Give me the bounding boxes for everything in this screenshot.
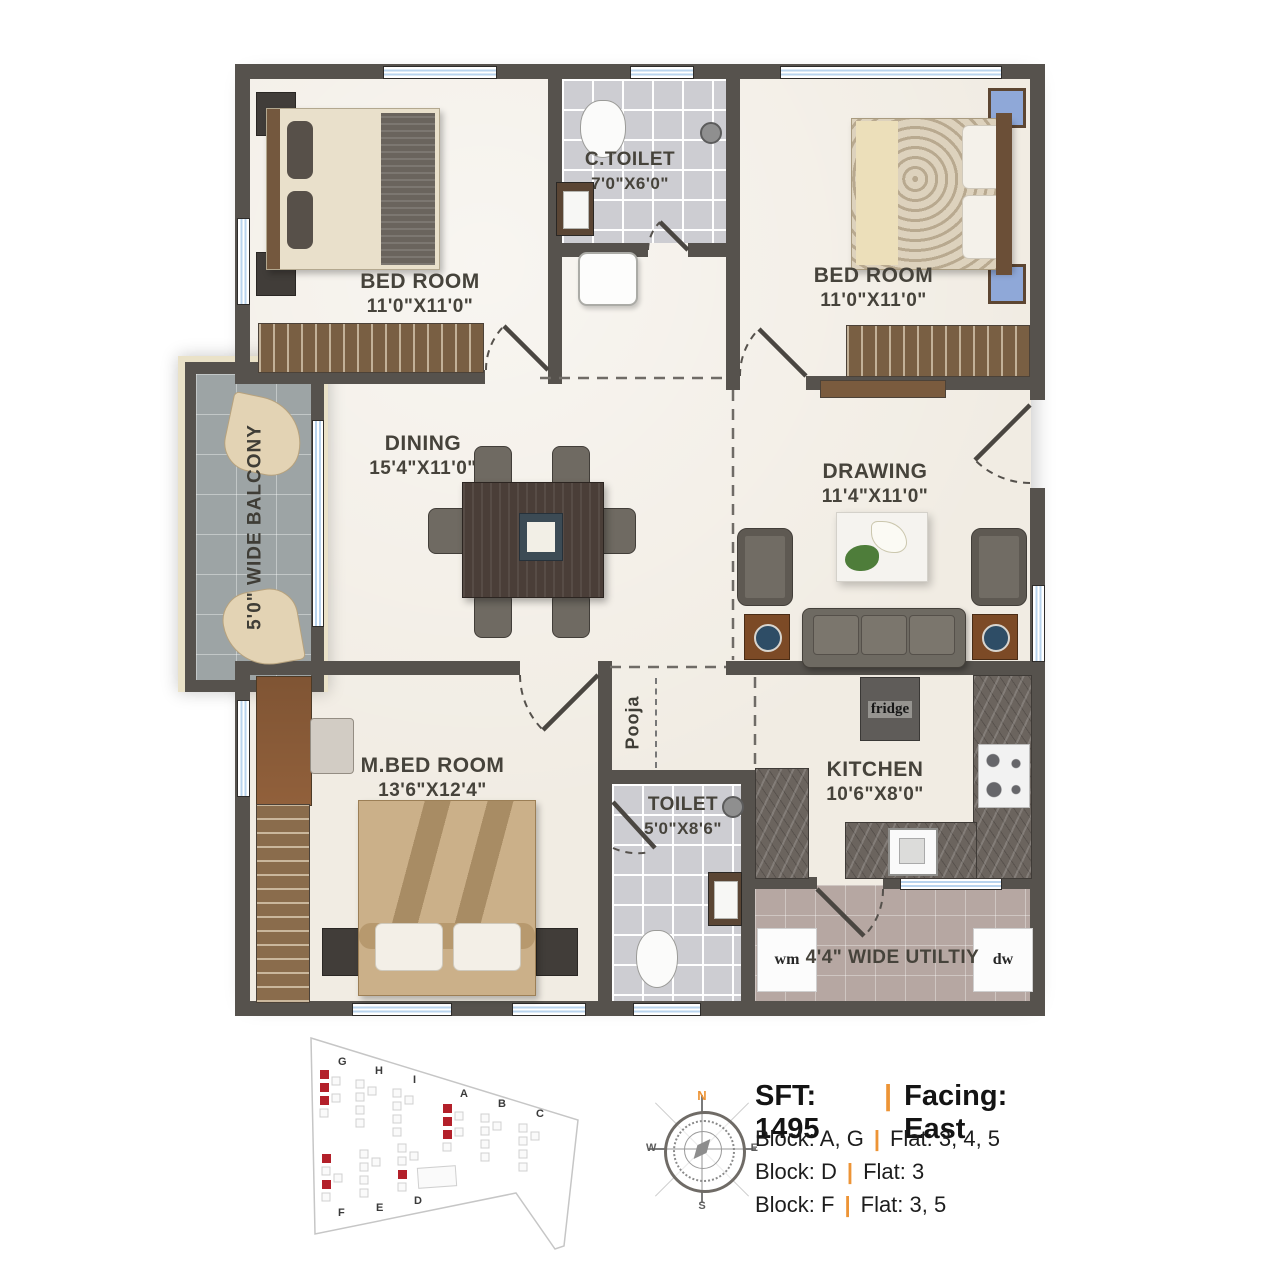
block-flat-row: Block: F | Flat: 3, 5 xyxy=(755,1192,946,1218)
compass-north-label: N xyxy=(646,1088,758,1103)
bedroom1-label: BED ROOM 11'0"X11'0" xyxy=(330,268,510,320)
room-dim: 10'6"X8'0" xyxy=(795,783,955,808)
flat-value: Flat: 3, 5 xyxy=(861,1192,947,1218)
divider: | xyxy=(847,1159,853,1185)
room-dim: 11'0"X11'0" xyxy=(330,295,510,320)
block-letter-E: E xyxy=(376,1202,383,1214)
apartment-floor-plan: fridge wm dw xyxy=(0,0,1280,1280)
dining-label: DINING 15'4"X11'0" xyxy=(338,430,508,482)
block-value: Block: A, G xyxy=(755,1126,864,1152)
block-letter-B: B xyxy=(498,1098,506,1110)
block-value: Block: D xyxy=(755,1159,837,1185)
kitchen-label: KITCHEN 10'6"X8'0" xyxy=(795,756,955,808)
block-value: Block: F xyxy=(755,1192,834,1218)
door-swing-arcs xyxy=(486,222,1030,936)
block-letter-G: G xyxy=(338,1056,347,1068)
mbedroom-label: M.BED ROOM 13'6"X12'4" xyxy=(340,752,525,804)
balcony-label: 5'0" WIDE BALCONY xyxy=(245,405,267,650)
compass-west-label: W xyxy=(646,1142,656,1154)
room-name: BED ROOM xyxy=(786,262,961,289)
room-dim: 7'0"X6'0" xyxy=(560,173,700,195)
room-dim: 5'0"X8'6" xyxy=(618,818,748,840)
ctoilet-label: C.TOILET 7'0"X6'0" xyxy=(560,148,700,195)
block-letter-F: F xyxy=(338,1207,345,1219)
block-letter-H: H xyxy=(375,1065,383,1077)
pooja-dash-boundary xyxy=(655,678,657,768)
door-leaves xyxy=(504,222,1030,936)
room-name: C.TOILET xyxy=(560,148,700,173)
block-letter-I: I xyxy=(413,1074,416,1086)
flat-value: Flat: 3 xyxy=(863,1159,924,1185)
divider: | xyxy=(844,1192,850,1218)
floorplan-page: fridge wm dw xyxy=(0,0,1280,1280)
bedroom2-label: BED ROOM 11'0"X11'0" xyxy=(786,262,961,314)
block-flat-row: Block: A, G | Flat: 3, 4, 5 xyxy=(755,1126,1000,1152)
block-letter-C: C xyxy=(536,1108,544,1120)
drawing-label: DRAWING 11'4"X11'0" xyxy=(790,458,960,510)
room-name: KITCHEN xyxy=(795,756,955,783)
flat-value: Flat: 3, 4, 5 xyxy=(890,1126,1000,1152)
room-dim: 11'4"X11'0" xyxy=(790,485,960,510)
room-dim: 13'6"X12'4" xyxy=(340,779,525,804)
room-name: TOILET xyxy=(618,793,748,818)
flat-info: SFT: 1495 | Facing: East Block: A, G | F… xyxy=(755,1080,1055,1220)
block-letter-D: D xyxy=(414,1195,422,1207)
room-name: DINING xyxy=(338,430,508,457)
space-divider-dashes xyxy=(540,378,755,768)
block-letter-A: A xyxy=(460,1088,468,1100)
room-name: 4'4" WIDE UTILTIY xyxy=(790,946,995,971)
room-dim: 11'0"X11'0" xyxy=(786,289,961,314)
utility-label: 4'4" WIDE UTILTIY xyxy=(790,946,995,971)
room-name: M.BED ROOM xyxy=(340,752,525,779)
room-dim: 15'4"X11'0" xyxy=(338,457,508,482)
compass: N S W E xyxy=(646,1086,758,1216)
compass-south-label: S xyxy=(646,1200,758,1212)
room-name: DRAWING xyxy=(790,458,960,485)
divider: | xyxy=(874,1126,880,1152)
divider: | xyxy=(884,1080,892,1113)
doors-and-dashes-overlay xyxy=(185,60,1045,1016)
block-flat-row: Block: D | Flat: 3 xyxy=(755,1159,924,1185)
room-name: BED ROOM xyxy=(330,268,510,295)
pooja-label: Pooja xyxy=(623,668,644,778)
toilet-label: TOILET 5'0"X8'6" xyxy=(618,793,748,840)
site-map: G H I A B C F E D xyxy=(268,1032,602,1264)
